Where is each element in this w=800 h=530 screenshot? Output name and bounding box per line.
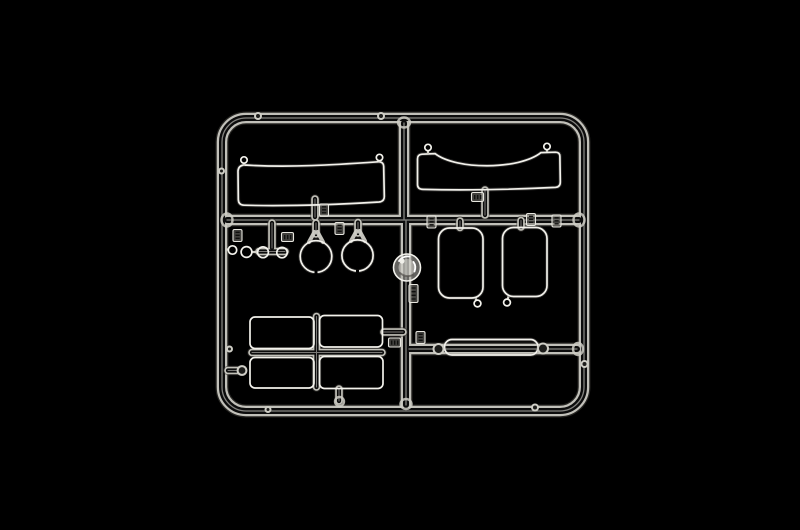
part-number-tag [552, 215, 561, 227]
part-number-tag [335, 223, 344, 235]
attachment-boss [434, 344, 444, 354]
attachment-boss [538, 344, 548, 354]
attachment-pad [238, 366, 247, 375]
part-number-tag [527, 214, 536, 226]
photo-canvas [0, 0, 800, 530]
part-number-tag [282, 233, 294, 242]
part-number-tag [427, 216, 436, 228]
sprue-photo [0, 0, 800, 530]
part-number-tag [233, 230, 242, 242]
part-number-tag [389, 338, 401, 347]
part-number-tag [416, 332, 425, 344]
part-number-tag [320, 204, 329, 216]
part-number-tag [409, 285, 418, 303]
part-number-tag [472, 193, 484, 202]
injection-gate [394, 254, 421, 281]
